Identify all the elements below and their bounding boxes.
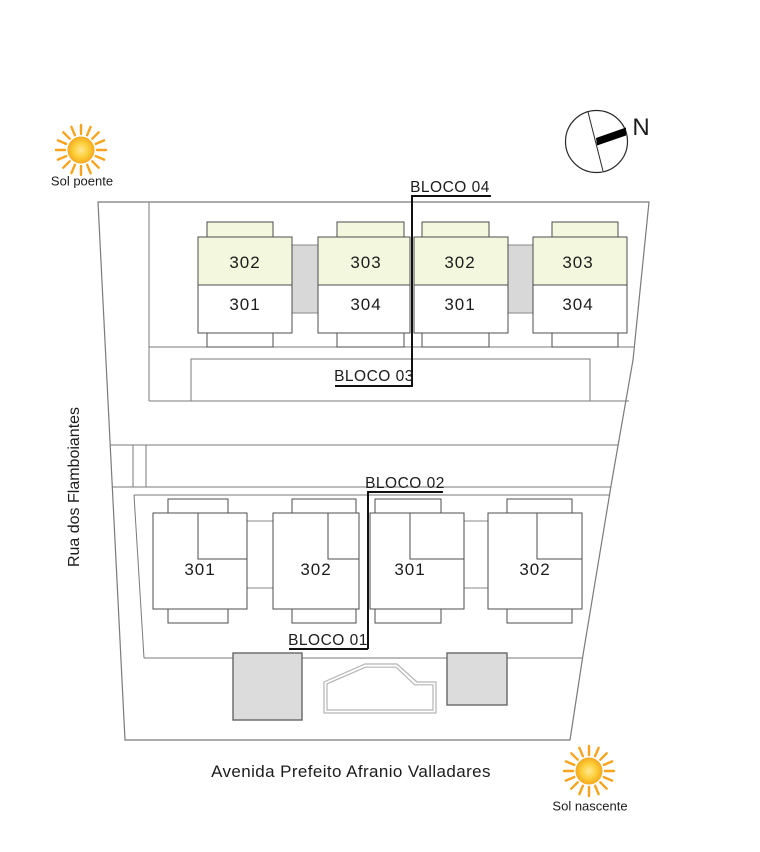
bloco-04-label: BLOCO 04: [410, 179, 490, 197]
sun-east-icon: [564, 746, 614, 796]
unit-label: 303: [562, 253, 593, 273]
unit-label: 304: [350, 295, 381, 315]
amenity-square-left: [233, 653, 302, 720]
unit-label: 303: [350, 253, 381, 273]
unit-label: 301: [184, 560, 215, 580]
sun-west-label: Sol poente: [51, 174, 113, 189]
north-compass-icon: [566, 111, 628, 173]
sun-east-label: Sol nascente: [552, 799, 627, 814]
unit-label: 302: [444, 253, 475, 273]
entrance-shape: [324, 664, 436, 713]
bloco-03-label: BLOCO 03: [334, 368, 414, 386]
unit-label: 304: [562, 295, 593, 315]
unit-label: 302: [229, 253, 260, 273]
unit-label: 301: [229, 295, 260, 315]
top-building-4: [533, 222, 627, 347]
north-label: N: [632, 114, 649, 142]
unit-label: 302: [519, 560, 550, 580]
site-plan: 302 301 303 304 302 301 303 304 301 302 …: [0, 0, 760, 852]
walkway-connector: [464, 521, 488, 588]
unit-label: 301: [444, 295, 475, 315]
top-building-1: [198, 222, 292, 347]
top-building-3: [414, 222, 508, 347]
stair-connector: [508, 245, 533, 313]
bloco-02-label: BLOCO 02: [365, 475, 445, 493]
unit-label: 301: [394, 560, 425, 580]
top-building-2: [318, 222, 410, 347]
stair-connector: [292, 245, 318, 313]
bottom-street-name: Avenida Prefeito Afranio Valladares: [211, 762, 491, 782]
sun-west-icon: [56, 125, 106, 175]
walkway-connector: [247, 521, 273, 588]
left-street-name: Rua dos Flamboiantes: [66, 407, 84, 567]
unit-label: 302: [300, 560, 331, 580]
amenity-square-right: [447, 653, 507, 705]
bloco-01-label: BLOCO 01: [288, 632, 368, 650]
